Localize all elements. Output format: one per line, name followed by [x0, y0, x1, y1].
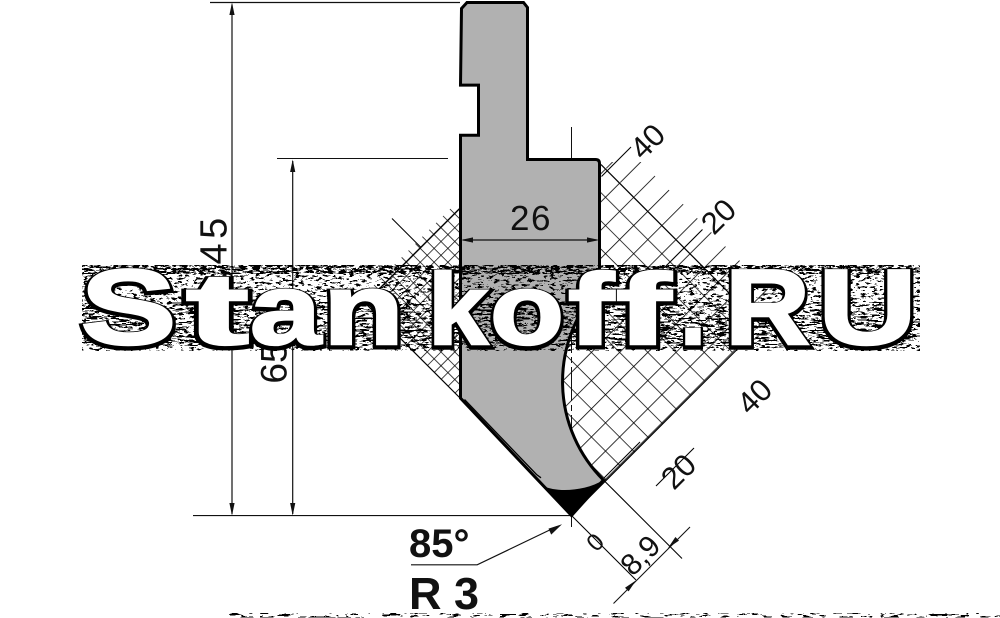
svg-text:o: o	[490, 254, 564, 366]
svg-text:f: f	[568, 254, 614, 366]
svg-text:n: n	[323, 254, 404, 366]
svg-text:a: a	[250, 254, 322, 366]
svg-text:S: S	[81, 247, 177, 367]
svg-text:U: U	[818, 247, 917, 367]
svg-text:f: f	[616, 254, 672, 366]
svg-text:k: k	[428, 254, 489, 366]
svg-text:26: 26	[510, 199, 552, 238]
svg-text:t: t	[186, 254, 249, 366]
svg-text:R: R	[725, 247, 810, 367]
svg-text:R 3: R 3	[409, 568, 479, 618]
svg-text:85°: 85°	[409, 522, 470, 566]
svg-text:.: .	[680, 254, 706, 366]
